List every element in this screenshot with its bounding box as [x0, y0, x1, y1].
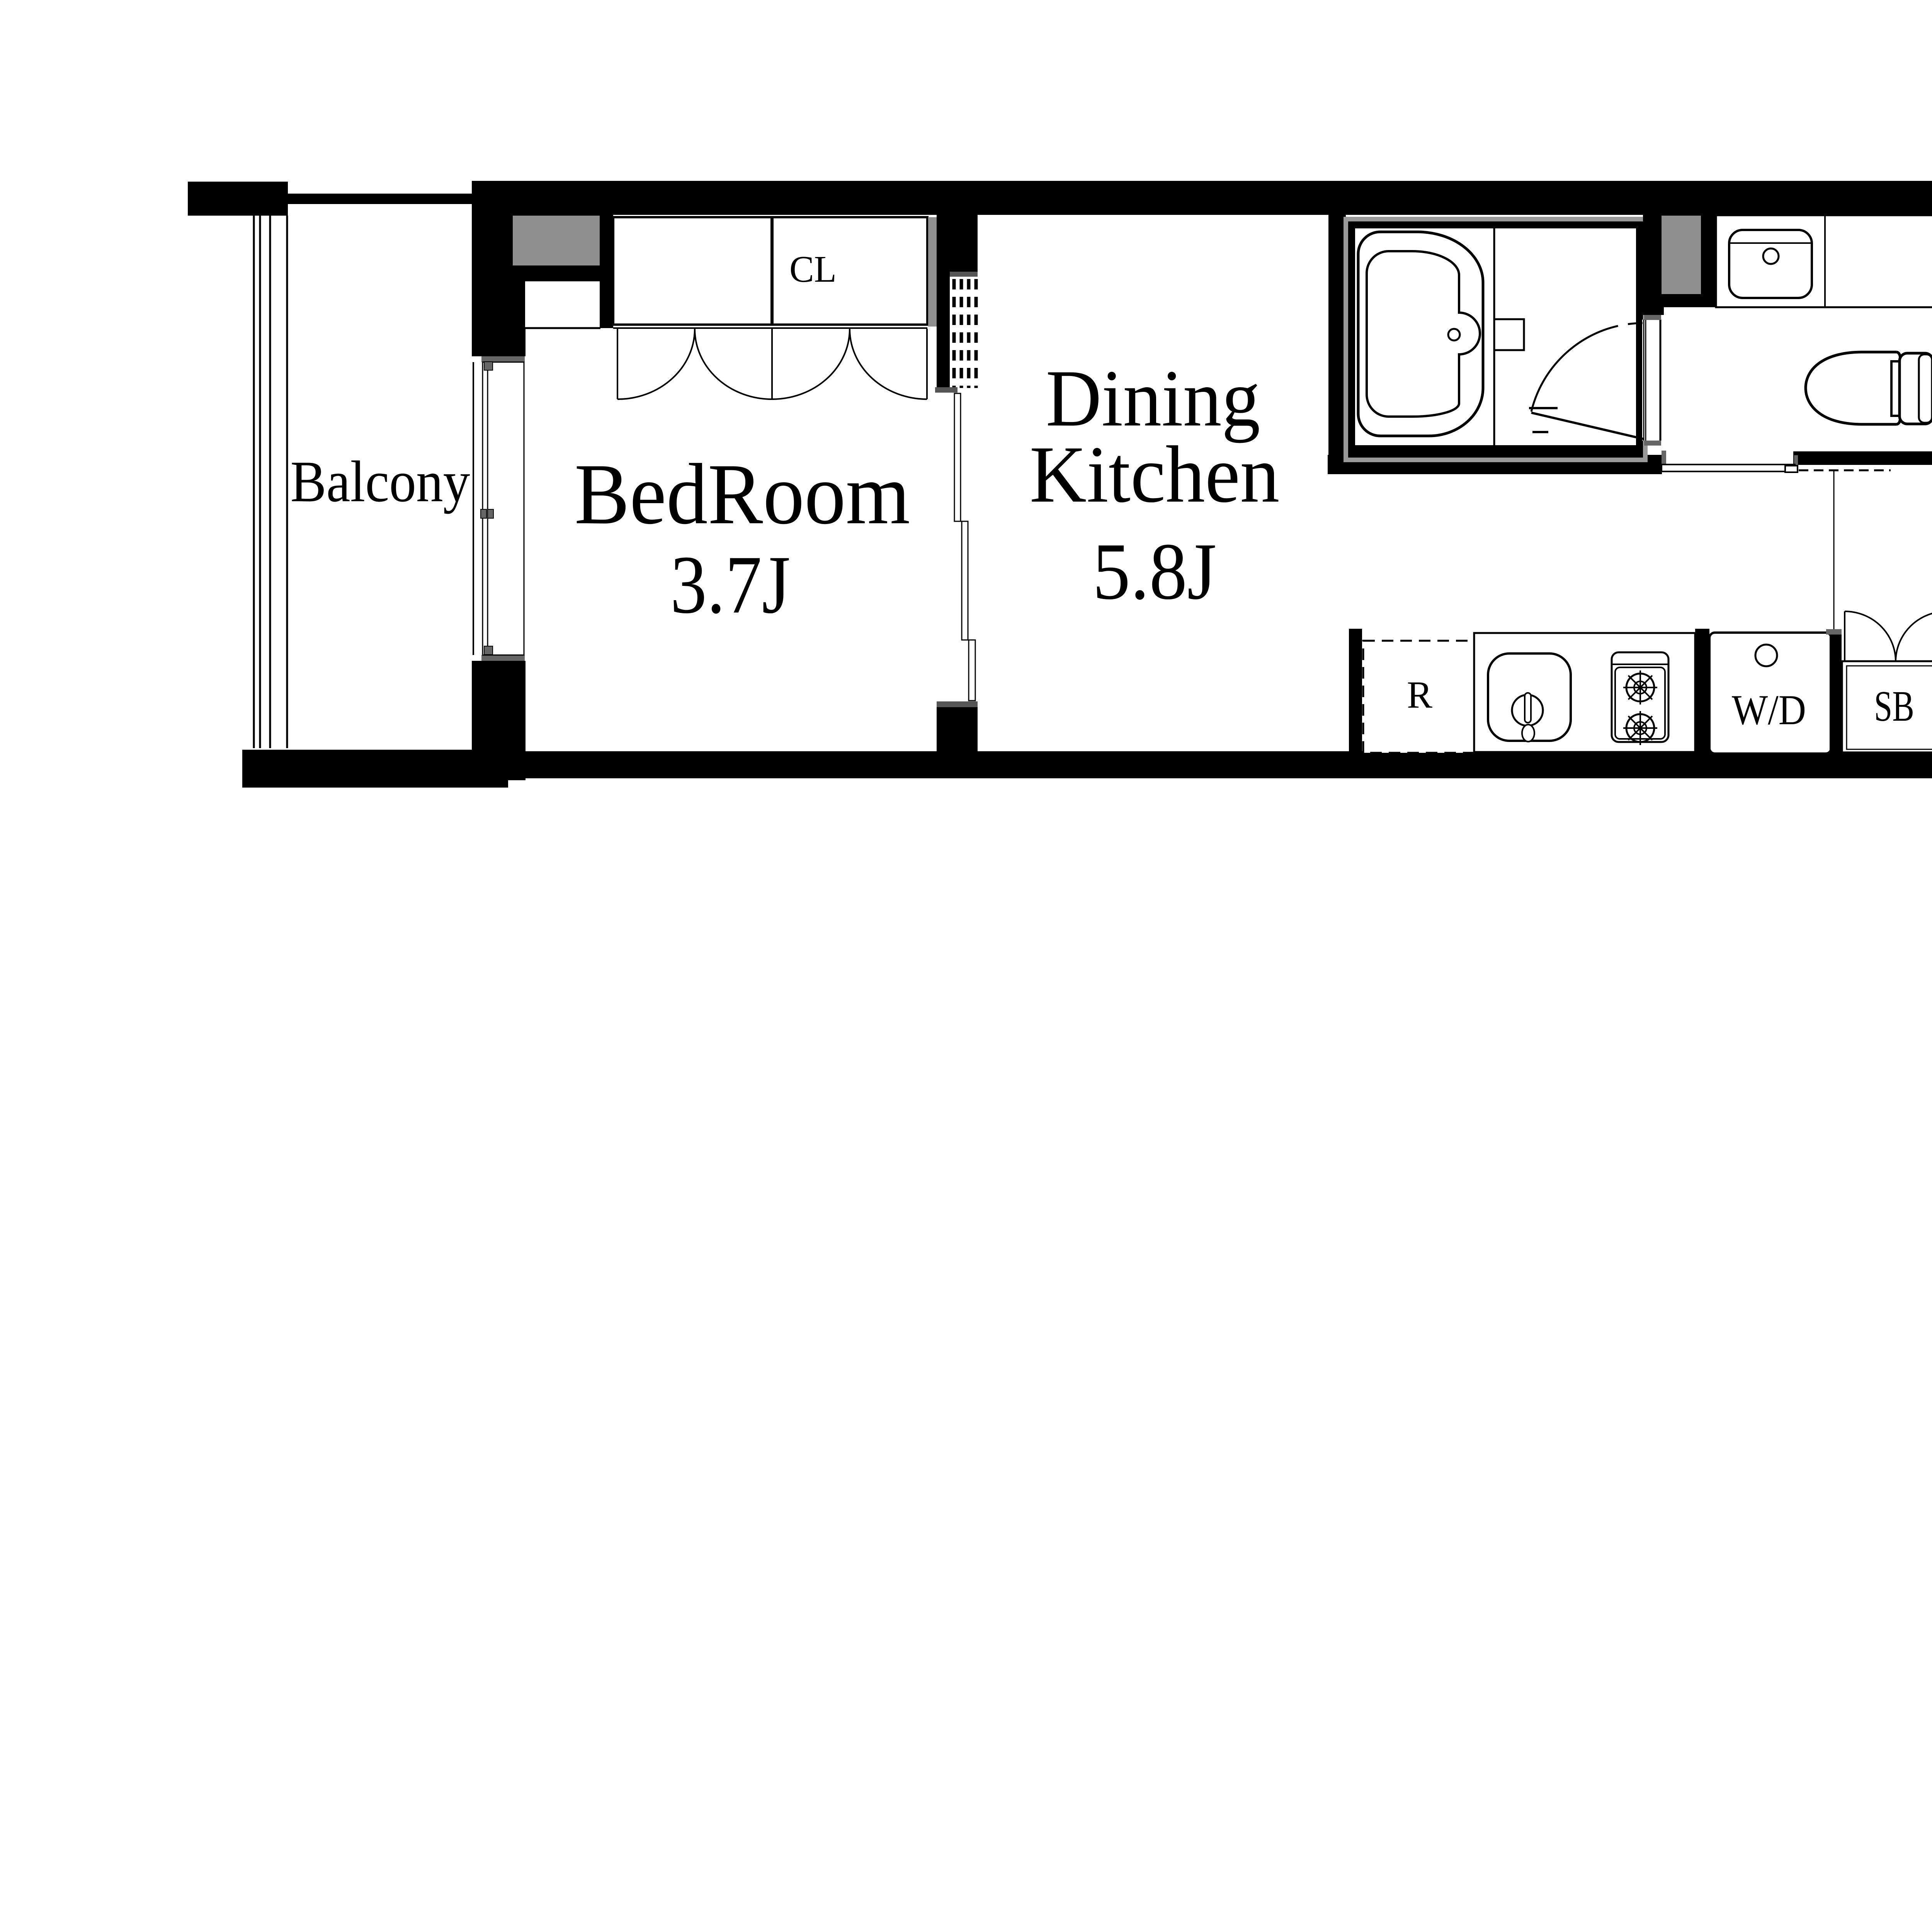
svg-text:SB: SB — [1874, 682, 1914, 730]
svg-text:W/D: W/D — [1732, 686, 1806, 733]
svg-text:5.8J: 5.8J — [1093, 527, 1217, 616]
svg-text:CL: CL — [789, 248, 837, 290]
svg-text:Kitchen: Kitchen — [1030, 430, 1280, 519]
svg-text:Balcony: Balcony — [291, 449, 470, 514]
svg-text:3.7J: 3.7J — [670, 538, 791, 631]
svg-text:R: R — [1407, 673, 1432, 716]
svg-text:BedRoom: BedRoom — [575, 446, 910, 542]
